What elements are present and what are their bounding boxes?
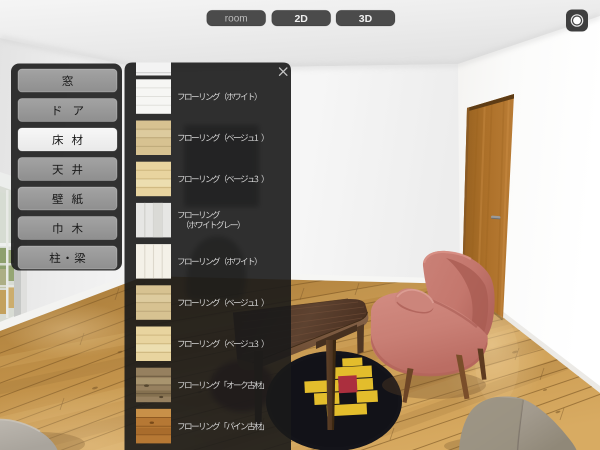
svg-text:3D: 3D	[359, 13, 373, 25]
svg-text:room: room	[225, 14, 248, 25]
svg-text:2D: 2D	[294, 13, 308, 25]
